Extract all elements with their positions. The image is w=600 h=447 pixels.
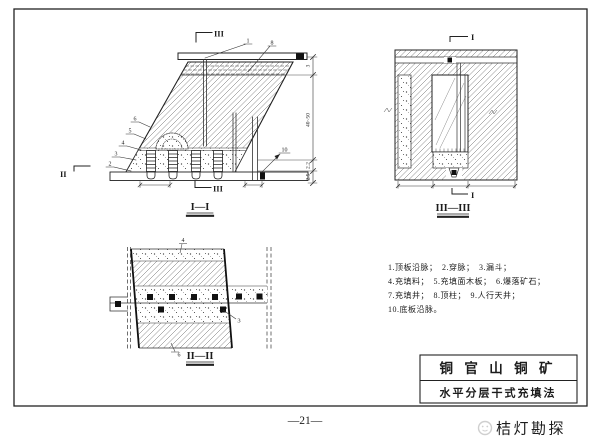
dim-top: 3 xyxy=(306,64,312,67)
callout-5: 5 xyxy=(129,129,132,135)
callout-10: 10 xyxy=(282,148,288,154)
callout-8: 8 xyxy=(271,41,274,47)
fill-material-band xyxy=(126,148,247,172)
section-view-3: I I III—III xyxy=(384,32,517,217)
view2-callout-bottom: 6 xyxy=(178,353,181,359)
watermark: 桔灯勘探 xyxy=(479,421,567,438)
dim-b2: 2.5 xyxy=(306,173,312,180)
view3-label: III—III xyxy=(435,203,470,214)
section-view-1: 6 5 4 3 2 1 8 10 III III xyxy=(60,29,317,216)
flag-III-top: III xyxy=(214,29,225,39)
view2-label: II—II xyxy=(187,351,214,362)
legend-line-4: 10.底板沿脉。 xyxy=(388,304,442,314)
adjacent-fill-strip xyxy=(398,75,411,168)
drawing-sheet: 6 5 4 3 2 1 8 10 III III xyxy=(0,0,600,447)
legend: 1.顶板沿脉； 2.穿脉； 3.漏斗； 4.充填料； 5.充填面木板； 6.爆落… xyxy=(388,262,546,314)
watermark-text: 桔灯勘探 xyxy=(496,421,566,438)
roof-drift-bar xyxy=(178,53,307,60)
flag-III-bottom: III xyxy=(213,184,224,194)
callout-6: 6 xyxy=(134,117,137,123)
raise-head-block xyxy=(448,58,453,63)
title-block: 铜 官 山 铜 矿 水平分层干式充填法 xyxy=(420,355,577,403)
method-name: 水平分层干式充填法 xyxy=(440,386,557,400)
dim-b1: 2.2 xyxy=(306,162,312,169)
stope-plan xyxy=(432,75,468,152)
engineering-drawing: 6 5 4 3 2 1 8 10 III III xyxy=(0,0,600,447)
page-number: —21— xyxy=(287,415,323,427)
floor-drift-strip xyxy=(110,172,308,181)
legend-line-2: 4.充填料； 5.充填面木板； 6.爆落矿石； xyxy=(388,276,546,286)
view3-dimension xyxy=(396,181,517,189)
mine-name: 铜 官 山 铜 矿 xyxy=(440,360,557,376)
floor-block xyxy=(260,173,265,180)
flag-I-bottom: I xyxy=(471,190,475,200)
callout-4: 4 xyxy=(122,141,125,147)
callout-1: 1 xyxy=(247,39,250,45)
view2-callout-right: 3 xyxy=(237,318,240,325)
section-view-2: 4 3 6 II—II xyxy=(110,238,271,365)
dim-mid: 40~50 xyxy=(306,113,312,127)
legend-line-3: 7.充填井； 8.顶柱； 9.人行天井； xyxy=(388,290,520,300)
fill-plan-block xyxy=(433,152,468,168)
small-dimensions xyxy=(138,182,264,188)
view1-label: I—I xyxy=(191,202,210,213)
flag-II-left: II xyxy=(60,169,67,179)
outlet-block xyxy=(452,170,457,175)
callout-2: 2 xyxy=(109,162,112,168)
watermark-logo-icon xyxy=(479,422,492,435)
drift-end-block xyxy=(296,53,304,59)
callout-3: 3 xyxy=(115,152,118,158)
legend-line-1: 1.顶板沿脉； 2.穿脉； 3.漏斗； xyxy=(388,262,512,272)
dimension-labels: 3 40~50 2.2 2.5 xyxy=(306,64,312,180)
view2-callout-top: 4 xyxy=(182,238,185,244)
flag-I-top: I xyxy=(471,32,475,42)
callout-10-group: 10 xyxy=(262,148,290,173)
